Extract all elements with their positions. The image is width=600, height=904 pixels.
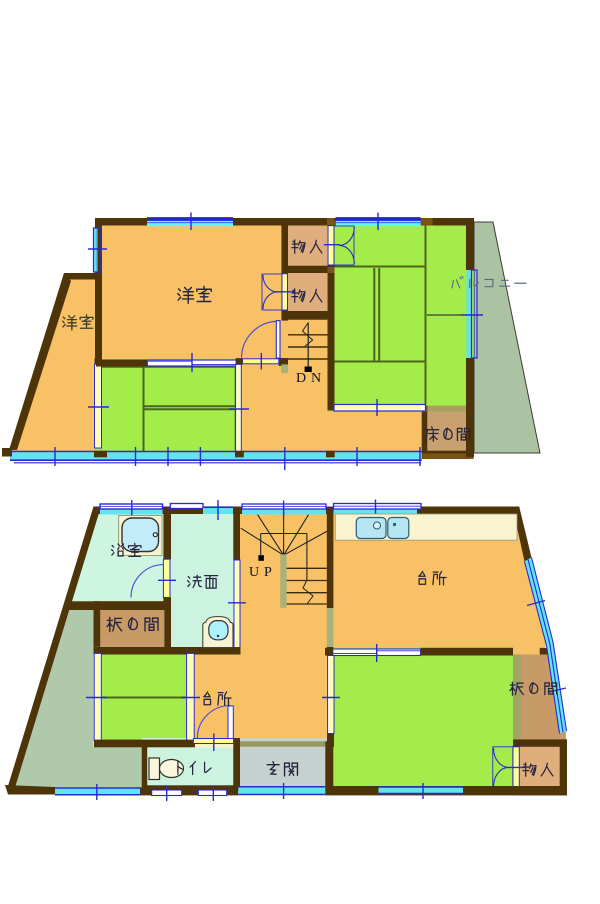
svg-text:N: N: [311, 371, 321, 386]
svg-text:D: D: [296, 371, 306, 386]
svg-text:P: P: [264, 565, 272, 580]
svg-text:U: U: [249, 565, 259, 580]
